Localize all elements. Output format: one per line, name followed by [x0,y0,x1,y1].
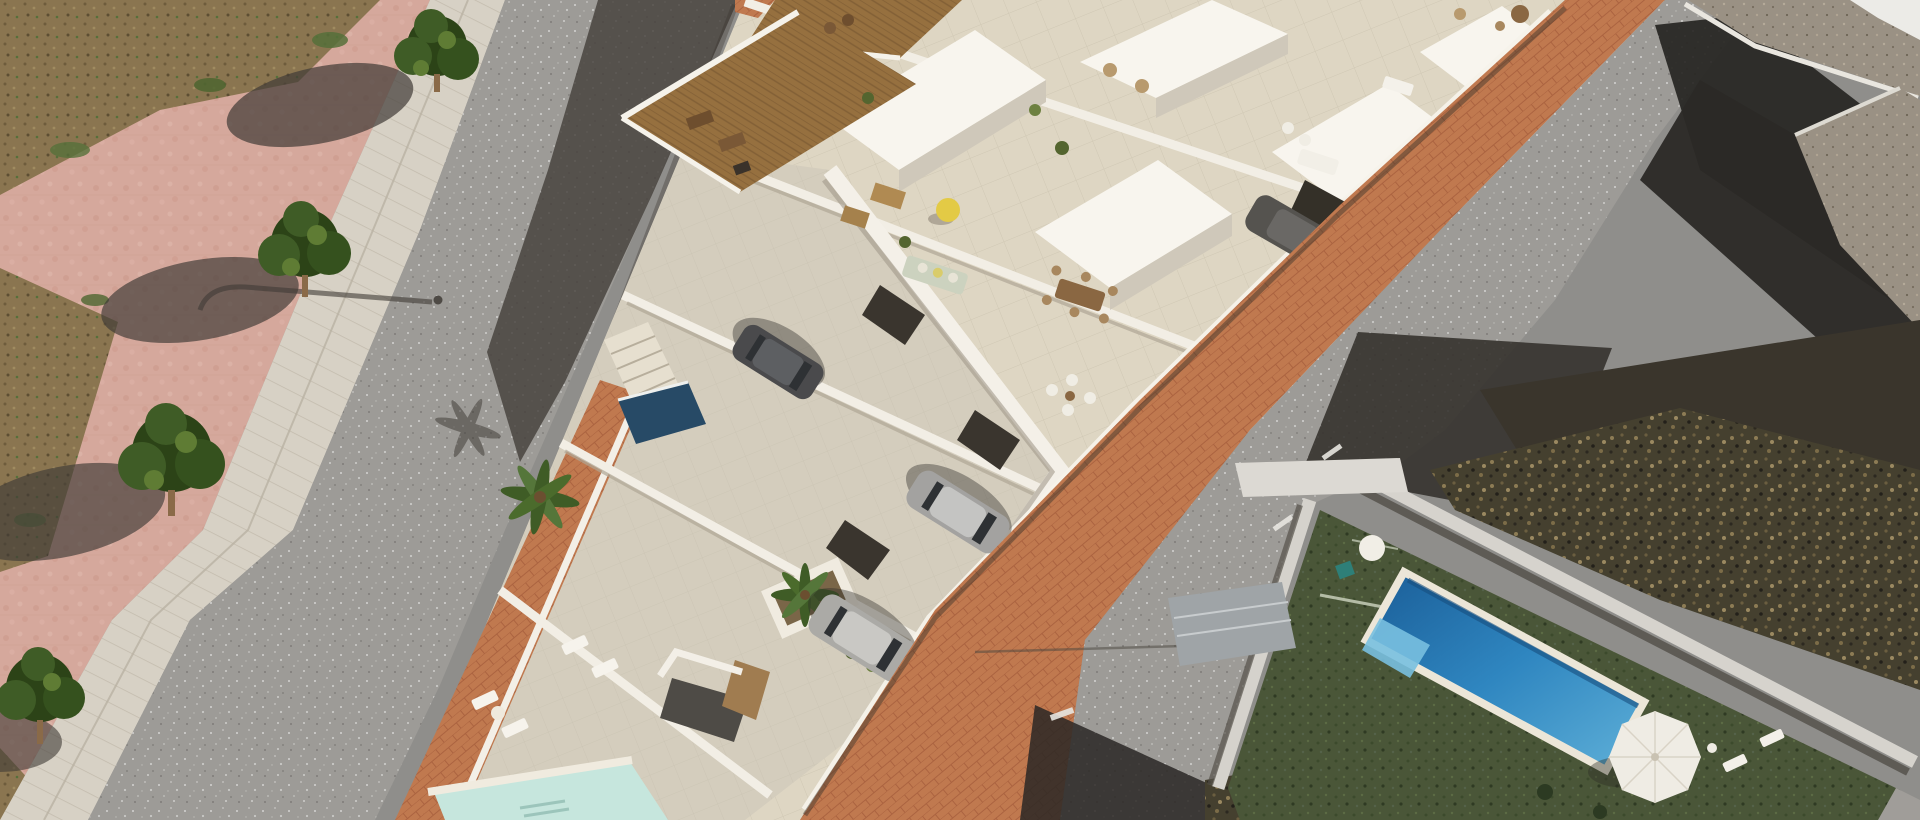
armchair [1299,134,1311,146]
wicker-chair [1103,63,1117,77]
scene-canvas [0,0,1920,820]
round-table [1511,5,1529,23]
bush [1593,805,1607,819]
grass-tuft [312,32,348,48]
street-lamp [434,296,443,305]
tree-trunk [434,74,440,92]
tree-trunk [37,720,43,744]
potted-plant [862,92,874,104]
potted-plant [1055,141,1069,155]
chair [1495,21,1505,31]
lounge-chair [1046,384,1058,396]
tree-foliage [282,258,300,276]
side-table [1707,743,1717,753]
coffee-table [1065,391,1075,401]
grass-tuft [50,142,90,158]
palm-crown [534,491,546,503]
palm-crown [800,590,810,600]
deck-chair [824,22,836,34]
deck-chair [842,14,854,26]
tree-foliage [413,60,429,76]
aerial-render-image [0,0,1920,820]
tree-foliage [175,431,197,453]
lounge-chair [1084,392,1096,404]
side-table [491,706,505,720]
yellow-beanbag [936,198,960,222]
white-parasol [1609,711,1701,803]
pool-cover-dome [1359,535,1385,561]
wicker-chair [1135,79,1149,93]
parasol-pole [1651,753,1659,761]
potted-plant [1029,104,1041,116]
grass-tuft [194,78,226,92]
tree-foliage [43,673,61,691]
bush [1537,784,1553,800]
potted-plant [899,236,911,248]
lounge-chair [1066,374,1078,386]
tree-foliage [307,225,327,245]
tree-trunk [168,490,175,516]
tree-foliage [144,470,164,490]
tree-foliage [438,31,456,49]
armchair [1282,122,1294,134]
tree-trunk [302,275,308,297]
wicker-chair [1454,8,1466,20]
lounge-chair [1062,404,1074,416]
entrance-wall [1235,458,1408,497]
